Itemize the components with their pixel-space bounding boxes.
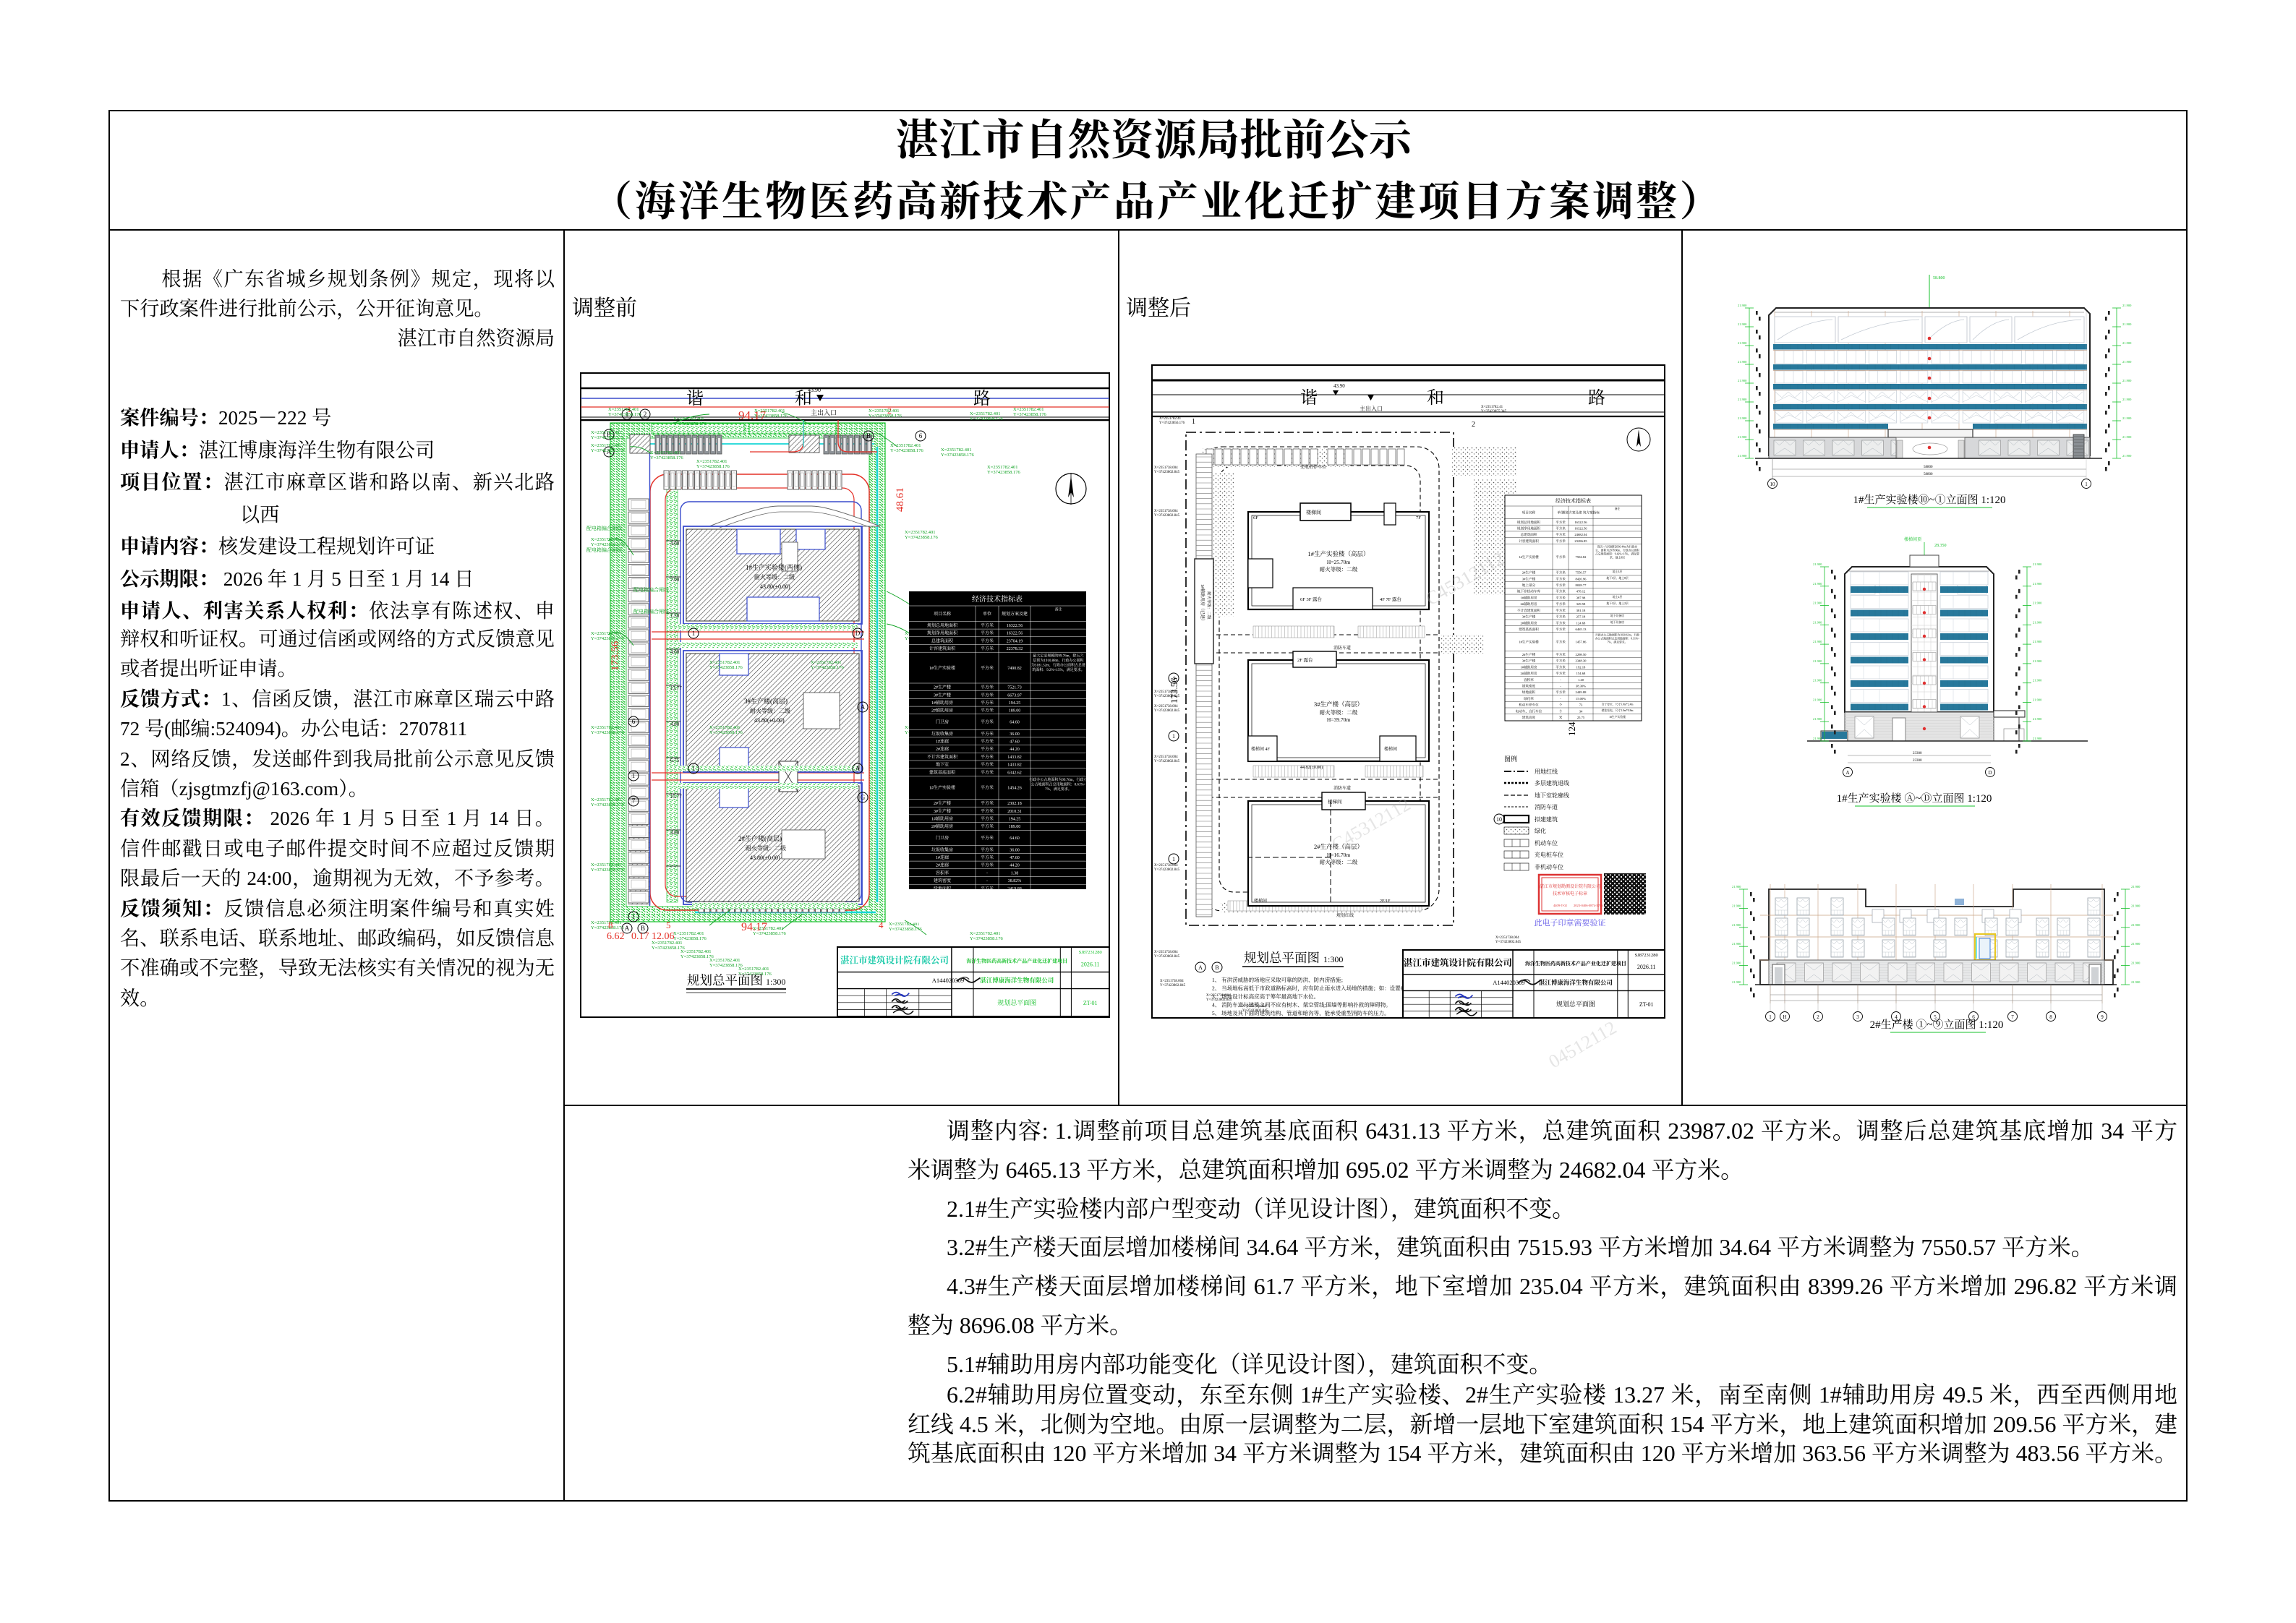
svg-text:规划红线: 规划红线 [1336,912,1354,918]
svg-text:最大定妥规模的99.76m，除五六: 最大定妥规模的99.76m，除五六 [1033,654,1084,659]
svg-text:43.90: 43.90 [1333,383,1345,389]
svg-text:建筑高度: 建筑高度 [1522,715,1536,720]
svg-text:2F/1F: 2F/1F [1380,899,1391,904]
svg-text:6F 3F 露台: 6F 3F 露台 [1300,596,1322,602]
svg-text:194.25: 194.25 [1009,818,1021,822]
svg-text:Y=37423802.845: Y=37423802.845 [1495,941,1522,944]
svg-text:2#生产楼: 2#生产楼 [934,800,952,806]
svg-text:Y=37423802.845: Y=37423802.845 [1154,955,1180,959]
svg-text:地下室: 地下室 [936,762,949,768]
svg-text:2#生产楼: 2#生产楼 [1522,652,1536,657]
svg-text:消防车道: 消防车道 [1333,645,1351,651]
svg-text:24: 24 [1012,918,1017,922]
svg-text:21.900: 21.900 [2033,640,2042,643]
svg-text:楼梯间 4F: 楼梯间 4F [1251,746,1271,752]
svg-text:1#生产实验楼 Ⓐ~Ⓓ立面图 1:120: 1#生产实验楼 Ⓐ~Ⓓ立面图 1:120 [1837,792,1992,805]
svg-text:行政办公占地面积为99.76m，行政办: 行政办公占地面积为99.76m，行政办 [1029,777,1088,782]
svg-text:平方米: 平方米 [1555,570,1566,575]
svg-text:湛江市建筑设计院有限公司: 湛江市建筑设计院有限公司 [1404,957,1512,968]
svg-text:21.900: 21.900 [2122,398,2132,401]
svg-text:容积率: 容积率 [936,870,949,875]
svg-text:规划总用地面积: 规划总用地面积 [1517,520,1541,525]
svg-text:H: H [1783,1014,1786,1020]
svg-text:B: B [641,925,645,932]
svg-text:Y=37423858.176: Y=37423858.176 [591,868,624,873]
svg-text:Y=37423858.176: Y=37423858.176 [1013,412,1046,417]
svg-text:189.00: 189.00 [1009,709,1021,714]
svg-text:楼梯间顶: 楼梯间顶 [1904,536,1922,542]
svg-text:1.40: 1.40 [1578,678,1584,682]
svg-text:平方米: 平方米 [1555,601,1566,607]
svg-text:2#生产楼: 2#生产楼 [1522,570,1536,575]
svg-text:7550.57: 7550.57 [1576,571,1587,575]
svg-text:电动车、自行车位: 电动车、自行车位 [1516,708,1542,714]
svg-text:21.900: 21.900 [1813,737,1822,740]
svg-text:X=2351782.401: X=2351782.401 [970,411,1001,416]
svg-text:2449.88: 2449.88 [1576,690,1587,694]
svg-text:耐火等级：二级: 耐火等级：二级 [746,844,786,852]
svg-text:2#生产楼 ①~⑨立面图 1:120: 2#生产楼 ①~⑨立面图 1:120 [1870,1018,2004,1031]
svg-text:X=2351782.401: X=2351782.401 [591,862,622,868]
svg-text:平方米: 平方米 [1555,526,1566,531]
svg-text:地上3层: 地上3层 [1613,570,1622,573]
svg-text:23286.85: 23286.85 [1574,539,1587,543]
svg-text:1457.86: 1457.86 [1576,641,1587,644]
svg-text:1:300: 1:300 [766,977,785,987]
svg-text:湛江市规划勘测设计院有限公司: 湛江市规划勘测设计院有限公司 [1540,883,1600,889]
svg-text:筑面积：9.2%<15%，满足要求。: 筑面积：9.2%<15%，满足要求。 [1032,667,1084,672]
svg-text:15.00%: 15.00% [1008,895,1022,899]
svg-text:楼梯间: 楼梯间 [1384,746,1397,752]
svg-text:7%，满足要求。: 7%，满足要求。 [1608,640,1628,643]
svg-text:平方米: 平方米 [1555,589,1566,594]
svg-text:329.58: 329.58 [1576,602,1586,606]
svg-text:Y=37423858.176: Y=37423858.176 [709,665,743,670]
svg-text:求，地上8层: 求，地上8层 [1610,555,1625,559]
svg-text:X=2351738.004: X=2351738.004 [1495,936,1519,940]
svg-text:X=2351782.401: X=2351782.401 [591,537,622,542]
svg-text:X=2351782.401: X=2351782.401 [987,465,1018,470]
svg-text:4: 4 [879,920,884,930]
svg-text:7F: 7F [1416,515,1421,521]
svg-text:21.900: 21.900 [1732,962,1741,965]
svg-text:不计容建筑面积: 不计容建筑面积 [1517,608,1541,613]
svg-text:7521.73: 7521.73 [1007,686,1022,690]
svg-text:6.62: 6.62 [607,931,625,942]
svg-text:1#辅助用房: 1#辅助用房 [931,816,953,822]
svg-text:平方米: 平方米 [981,665,994,671]
svg-text:充电桩车位: 充电桩车位 [1535,851,1563,858]
svg-text:总建筑面积: 总建筑面积 [931,638,954,643]
svg-text:1#生产实验楼: 1#生产实验楼 [1519,554,1539,560]
svg-text:技术审核电子标章: 技术审核电子标章 [1553,891,1587,896]
svg-text:平方米: 平方米 [1555,595,1566,600]
svg-text:Y=37423802.845: Y=37423802.845 [1154,514,1180,518]
svg-text:21.900: 21.900 [1732,980,1741,984]
svg-text:耐火等级：二级: 耐火等级：二级 [1320,858,1358,865]
svg-text:平方米: 平方米 [1555,640,1566,645]
svg-text:21.900: 21.900 [1732,885,1741,888]
svg-text:平方米: 平方米 [1555,583,1566,588]
svg-text:1#辅助用房: 1#辅助用房 [931,700,953,706]
svg-text:平方米: 平方米 [981,622,994,628]
svg-text:A: A [861,703,866,711]
svg-text:平方米: 平方米 [1555,614,1566,620]
svg-text:计容建筑面积: 计容建筑面积 [929,646,956,651]
svg-text:10: 10 [1496,816,1502,823]
svg-text:规划总平面图: 规划总平面图 [687,973,763,988]
svg-text:A: A [855,765,861,772]
svg-text:28.350: 28.350 [1934,544,1947,548]
svg-text:47.60: 47.60 [1010,856,1020,860]
svg-text:配电箱偏合闸线: 配电箱偏合闸线 [633,586,669,593]
svg-text:21.900: 21.900 [1813,601,1822,605]
svg-text:平方米: 平方米 [1555,608,1566,613]
svg-text:平方米: 平方米 [1555,627,1566,632]
svg-text:电动车、自行车位: 电动车、自行车位 [925,924,960,930]
svg-text:21.900: 21.900 [2033,717,2042,721]
svg-text:X=2351738.004: X=2351738.004 [1154,510,1178,513]
svg-text:2: 2 [1817,1014,1819,1020]
svg-text:Y=37423802.845: Y=37423802.845 [1154,868,1180,872]
svg-text:21.900: 21.900 [2033,562,2042,566]
svg-text:2023-0406-0874-5786: 2023-0406-0874-5786 [1574,904,1603,907]
svg-text:个: 个 [1559,708,1563,714]
svg-text:路: 路 [973,389,991,408]
svg-text:地下设备房: 地下设备房 [1610,620,1624,624]
svg-text:X=2351782.401: X=2351782.401 [869,408,900,414]
svg-text:Y=37423858.176: Y=37423858.176 [673,421,707,427]
svg-text:21.900: 21.900 [2033,679,2042,682]
svg-text:8426.96: 8426.96 [1576,577,1587,581]
svg-text:用地红线: 用地红线 [1535,768,1558,775]
svg-text:21.900: 21.900 [1813,659,1822,663]
svg-text:平方米: 平方米 [981,638,994,643]
svg-text:平方米: 平方米 [981,769,994,775]
svg-text:7: 7 [632,797,636,805]
svg-text:21.900: 21.900 [2122,416,2132,420]
svg-text:充电桩车位8个: 充电桩车位8个 [1046,909,1070,914]
svg-text:3#生产楼: 3#生产楼 [934,808,952,814]
svg-text:平方米: 平方米 [981,739,994,745]
svg-text:规划总平面图: 规划总平面图 [1556,1000,1595,1008]
svg-text:1#生产实验楼: 1#生产实验楼 [1519,640,1539,645]
svg-text:Y=37423802.845: Y=37423802.845 [1154,760,1180,763]
svg-text:6.75: 6.75 [670,758,680,763]
svg-text:1#生产实验楼⑩~①立面图 1:120: 1#生产实验楼⑩~①立面图 1:120 [1853,493,2005,506]
svg-text:拟建建筑: 拟建建筑 [1535,815,1558,823]
svg-text:平方米: 平方米 [1555,554,1566,560]
svg-text:381.18: 381.18 [1576,609,1586,612]
svg-text:垃圾收集房: 垃圾收集房 [931,731,953,737]
svg-text:15.00%: 15.00% [1576,697,1586,701]
svg-text:8: 8 [2049,1014,2052,1020]
svg-text:建筑密度: 建筑密度 [1522,684,1536,689]
svg-text:D: D [1988,770,1992,776]
svg-text:规划方案及建: 规划方案及建 [1002,611,1028,617]
svg-text:机动车停车位: 机动车停车位 [1519,703,1539,708]
svg-text:24682.04: 24682.04 [1574,533,1587,536]
svg-text:建筑密度: 建筑密度 [934,878,951,883]
svg-text:1#连廊: 1#连廊 [936,739,949,745]
svg-text:1#连廊: 1#连廊 [936,855,949,860]
svg-text:Y=37423858.176: Y=37423858.176 [905,535,938,540]
svg-text:1#辅助用房（已建）: 1#辅助用房（已建） [1200,584,1205,623]
svg-text:2、 当场地标高低于市政道路标高时，应有防止雨水进入场地的措: 2、 当场地标高低于市政道路标高时，应有防止雨水进入场地的措施；如：设置截水沟 [1212,985,1417,993]
svg-text:X=2351782.401: X=2351782.401 [754,408,785,414]
svg-text:1: 1 [1172,856,1175,862]
svg-text:平方米: 平方米 [981,646,994,651]
svg-text:消防车道: 消防车道 [1333,785,1351,791]
svg-text:21.900: 21.900 [1813,640,1822,643]
svg-text:平方米: 平方米 [981,731,994,737]
svg-text:7%，满足要求。: 7%，满足要求。 [1045,787,1072,792]
svg-text:1#生产实验楼: 1#生产实验楼 [1047,932,1070,937]
svg-text:1.38: 1.38 [1011,871,1019,875]
svg-text:X=2351782.401: X=2351782.401 [591,430,622,435]
svg-text:A: A [1198,964,1203,971]
svg-text:经济技术指标表: 经济技术指标表 [1555,497,1591,504]
svg-text:规划总平面图: 规划总平面图 [1244,951,1320,965]
svg-text:36.00: 36.00 [1010,732,1020,737]
svg-text:办公占地面积占总用地面积：0.31%<: 办公占地面积占总用地面积：0.31%< [1595,636,1639,640]
svg-text:主出入口: 主出入口 [811,408,837,416]
svg-text:1: 1 [692,630,696,637]
svg-text:平方米: 平方米 [981,855,994,860]
svg-text:地下1层、地上2层: 地下1层、地上2层 [1606,601,1629,605]
svg-text:21.900: 21.900 [1738,454,1747,458]
svg-text:绿地面积: 绿地面积 [1522,690,1536,695]
svg-text:规划净用地面积: 规划净用地面积 [927,630,958,636]
svg-text:尺寸隔蔽，尺寸2.0m*0.8m: 尺寸隔蔽，尺寸2.0m*0.8m [1038,924,1080,929]
svg-text:21.900: 21.900 [2131,923,2141,927]
svg-text:2#辅助用房: 2#辅助用房 [931,708,953,714]
svg-text:个: 个 [985,909,989,915]
svg-text:X=2351782.401: X=2351782.401 [650,450,681,455]
svg-text:3#生产楼: 3#生产楼 [1522,659,1536,664]
svg-text:58800: 58800 [1924,473,1933,476]
svg-text:地上: 地上 [938,909,947,915]
svg-text:规划总用地面积: 规划总用地面积 [927,622,958,628]
svg-text:6342.62: 6342.62 [1007,771,1022,775]
svg-text:2010.31: 2010.31 [1007,810,1022,814]
svg-text:21.900: 21.900 [1813,698,1822,701]
svg-text:平方米: 平方米 [981,700,994,706]
svg-text:21.900: 21.900 [1738,341,1747,345]
svg-text:湛江博康海洋生物有限公司: 湛江博康海洋生物有限公司 [1539,979,1613,986]
svg-text:4.00: 4.00 [670,721,680,727]
svg-text:机动车位: 机动车位 [1535,839,1558,847]
svg-text:平方米: 平方米 [981,692,994,698]
svg-text:7490.82: 7490.82 [1007,667,1022,671]
svg-text:73: 73 [1579,703,1583,707]
svg-text:X=2351782.41: X=2351782.41 [1159,417,1182,421]
svg-text:B: B [866,432,871,440]
svg-text:平方米: 平方米 [1555,576,1566,581]
svg-text:项目名称: 项目名称 [1522,510,1536,515]
svg-text:257.18: 257.18 [1576,615,1586,619]
svg-text:2026.11: 2026.11 [1637,964,1656,970]
svg-text:X=2351782.401: X=2351782.401 [591,725,622,730]
svg-text:耐火等级：二级: 耐火等级：二级 [750,707,790,714]
svg-text:平方米: 平方米 [981,685,994,690]
svg-text:A144020309: A144020309 [1493,979,1524,986]
svg-text:7.00: 7.00 [670,577,680,583]
svg-text:2298.50: 2298.50 [1576,653,1587,656]
svg-text:21.900: 21.900 [1738,416,1747,420]
svg-text:计容建筑面积: 计容建筑面积 [1519,539,1539,544]
svg-text:3、 场地设计标高应高于筹年最高地下水位。: 3、 场地设计标高应高于筹年最高地下水位。 [1212,993,1319,1000]
svg-text:44.20: 44.20 [1010,748,1020,752]
svg-text:1: 1 [692,765,696,772]
svg-text:-: - [986,879,988,883]
svg-text:21.900: 21.900 [2122,454,2132,458]
svg-text:A144020309: A144020309 [932,977,964,984]
svg-text:X=2351782.41: X=2351782.41 [1481,406,1503,409]
svg-text:4409-T-02: 4409-T-02 [1553,904,1567,907]
svg-text:平方米: 平方米 [981,785,994,791]
svg-text:耐火等级：二级: 耐火等级：二级 [1320,565,1358,573]
svg-text:平方米: 平方米 [1555,620,1566,625]
svg-text:16322.56: 16322.56 [1574,527,1587,531]
svg-text:X=2351782.401: X=2351782.401 [591,920,622,925]
svg-text:绿化: 绿化 [1535,827,1546,834]
svg-text:D: D [855,630,861,637]
svg-text:经济技术指标表: 经济技术指标表 [972,594,1023,604]
svg-text:海洋生物医药高新技术产品产业化迁扩建项目: 海洋生物医药高新技术产品产业化迁扩建项目 [966,957,1067,964]
svg-text:Y=37423858.176: Y=37423858.176 [608,412,641,417]
svg-text:21.900: 21.900 [1813,562,1822,566]
svg-text:为3181.52m，行政办公面积占总建: 为3181.52m，行政办公面积占总建 [1031,663,1085,668]
svg-text:21.900: 21.900 [2131,942,2141,946]
svg-text:1: 1 [632,772,636,779]
svg-text:Y=37423858.176: Y=37423858.176 [941,453,974,458]
svg-text:壁挂充电，尺寸2.0m*0.8m: 壁挂充电，尺寸2.0m*0.8m [1602,708,1634,712]
svg-text:23300: 23300 [1913,752,1922,755]
svg-text:X=2351782.401: X=2351782.401 [608,407,639,412]
svg-text:6F: 6F [1253,515,1258,521]
svg-text:规划总平面图: 规划总平面图 [997,998,1036,1006]
svg-text:容积率: 容积率 [1524,677,1534,682]
svg-text:21.900: 21.900 [1738,435,1747,439]
svg-text:X=2351782.401: X=2351782.401 [673,416,704,421]
svg-text:地下室轮廓线: 地下室轮廓线 [1535,792,1569,799]
svg-text:Y=37423858.176: Y=37423858.176 [591,448,624,453]
svg-text:充电桩停车位: 充电桩停车位 [1300,464,1326,470]
svg-text:Y=37423858.176: Y=37423858.176 [591,802,624,808]
svg-text:X=2351782.401: X=2351782.401 [673,931,704,936]
svg-text:绿化率: 绿化率 [936,894,949,899]
svg-text:和: 和 [1427,388,1444,408]
svg-text:38.30%: 38.30% [1576,685,1586,688]
svg-text:Y=37423858.176: Y=37423858.176 [591,636,624,641]
svg-text:Y=37423802.845: Y=37423802.845 [1154,471,1180,474]
svg-text:2F 露台: 2F 露台 [1297,656,1313,663]
svg-text:谐: 谐 [1300,388,1318,408]
svg-text:平方米: 平方米 [981,754,994,760]
svg-text:21.900: 21.900 [2131,980,2141,984]
svg-text:21.900: 21.900 [2122,322,2132,326]
svg-text:4、 消防车道与建筑之间不应有树木、架空管线;围墙等影响扑救: 4、 消防车道与建筑之间不应有树木、架空管线;围墙等影响扑救的障碍物。 [1212,1001,1391,1009]
svg-text:楼梯间: 楼梯间 [1254,898,1267,904]
svg-text:21.900: 21.900 [2131,904,2141,907]
svg-text:21.900: 21.900 [1732,942,1741,946]
svg-text:2302.18: 2302.18 [1007,802,1022,806]
svg-text:94.17: 94.17 [741,921,767,933]
svg-text:21.900: 21.900 [1738,304,1747,307]
svg-text:Y=37423802.845: Y=37423802.845 [1154,709,1180,713]
svg-text:23300: 23300 [1913,759,1922,763]
svg-text:68: 68 [1012,925,1017,930]
svg-text:平方米: 平方米 [981,847,994,852]
svg-text:总建筑面积: 总建筑面积 [1521,532,1537,537]
svg-text:平方米: 平方米 [981,862,994,868]
svg-text:16322.56: 16322.56 [1007,632,1023,636]
svg-text:备注: 备注 [1615,507,1621,510]
svg-text:21.900: 21.900 [1738,398,1747,401]
svg-text:平方米: 平方米 [1555,659,1566,664]
svg-text:9: 9 [2101,1014,2104,1020]
svg-text:耐火等级：二级: 耐火等级：二级 [1320,708,1358,716]
svg-text:-: - [986,895,988,899]
svg-text:2: 2 [644,411,647,418]
svg-text:12.06: 12.06 [652,931,675,942]
svg-text:6465.13: 6465.13 [1576,628,1587,631]
svg-text:机动车停车位: 机动车停车位 [929,901,955,907]
svg-text:米: 米 [1559,715,1563,720]
svg-text:21.900: 21.900 [1738,360,1747,364]
svg-text:7: 7 [2011,1014,2014,1020]
svg-text:21.900: 21.900 [2033,659,2042,663]
svg-text:22378.32: 22378.32 [1007,647,1023,651]
svg-text:平方米: 平方米 [981,800,994,806]
svg-text:配电箱偏合闸线: 配电箱偏合闸线 [586,525,622,531]
svg-text:21.900: 21.900 [1813,717,1822,721]
svg-text:124.68: 124.68 [1576,621,1586,625]
svg-text:公，面积为2978.86m，行政办公面积: 公，面积为2978.86m，行政办公面积 [1595,548,1639,552]
svg-text:Y=37423858.176: Y=37423858.176 [591,730,624,735]
svg-text:5: 5 [666,920,671,930]
svg-text:X=2351738.004: X=2351738.004 [1160,980,1184,983]
svg-text:平方米: 平方米 [1555,690,1566,695]
svg-text:21.900: 21.900 [2122,341,2132,345]
svg-text:1: 1 [1192,418,1195,426]
svg-text:此电子印章需要验证: 此电子印章需要验证 [1535,917,1606,928]
svg-text:2#连廊: 2#连廊 [936,862,949,868]
svg-text:21.900: 21.900 [2122,379,2132,382]
svg-text:1433.82: 1433.82 [1007,763,1022,768]
svg-text:耐火等级：二级: 耐火等级：二级 [1206,591,1212,620]
svg-text:地下非机动车库: 地下非机动车库 [1517,589,1541,594]
svg-text:含子母位，尺寸5.0m*2.4m: 含子母位，尺寸5.0m*2.4m [1602,702,1634,706]
svg-text:Y=37423858.176: Y=37423858.176 [696,464,730,469]
svg-text:16322.56: 16322.56 [1574,521,1587,524]
svg-text:地上2层: 地上2层 [1613,595,1622,599]
svg-text:1.50: 1.50 [670,613,680,619]
svg-text:平方米: 平方米 [1555,671,1566,676]
svg-text:4F 7F 露台: 4F 7F 露台 [1380,596,1401,602]
svg-text:消防车道: 消防车道 [1535,803,1558,810]
svg-text:21.900: 21.900 [2033,737,2042,740]
svg-text:配电箱偏合闸线: 配电箱偏合闸线 [633,608,669,614]
svg-text:1433.82: 1433.82 [1007,755,1022,760]
svg-text:21.900: 21.900 [2033,582,2042,586]
svg-text:1、 有洪涝威胁的场地应采取可靠的防洪、防内涝措施；: 1、 有洪涝威胁的场地应采取可靠的防洪、防内涝措施； [1212,976,1347,983]
svg-text:1#生产实验楼: 1#生产实验楼 [929,665,956,671]
svg-text:不计容建筑面积: 不计容建筑面积 [927,754,958,760]
svg-text:478.12: 478.12 [1576,590,1586,594]
svg-text:2#连廊: 2#连廊 [936,746,949,752]
